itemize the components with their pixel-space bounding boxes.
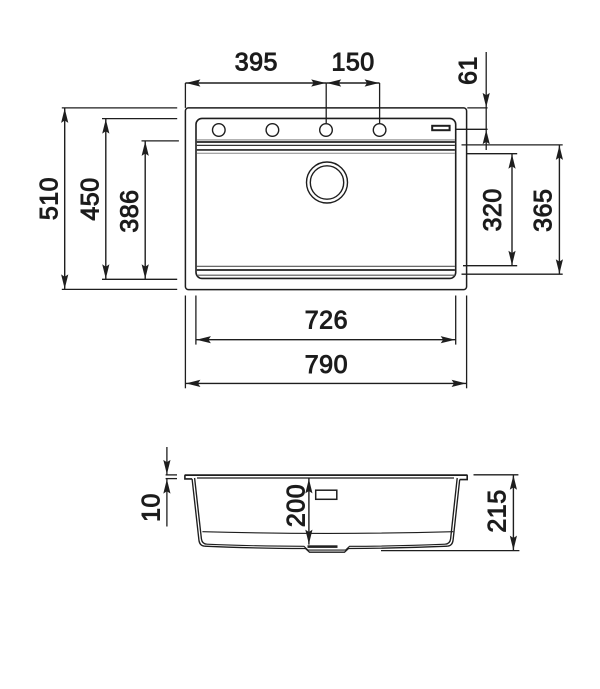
svg-text:365: 365	[529, 189, 557, 232]
svg-text:726: 726	[305, 307, 348, 335]
svg-text:386: 386	[116, 189, 144, 232]
svg-text:215: 215	[484, 489, 512, 532]
svg-text:510: 510	[36, 177, 64, 220]
svg-text:61: 61	[455, 56, 483, 85]
svg-text:150: 150	[331, 48, 374, 76]
svg-text:790: 790	[305, 351, 348, 379]
svg-text:395: 395	[235, 48, 278, 76]
svg-text:320: 320	[479, 188, 507, 231]
svg-text:200: 200	[283, 484, 311, 527]
svg-text:10: 10	[138, 493, 166, 522]
svg-text:450: 450	[76, 177, 104, 220]
